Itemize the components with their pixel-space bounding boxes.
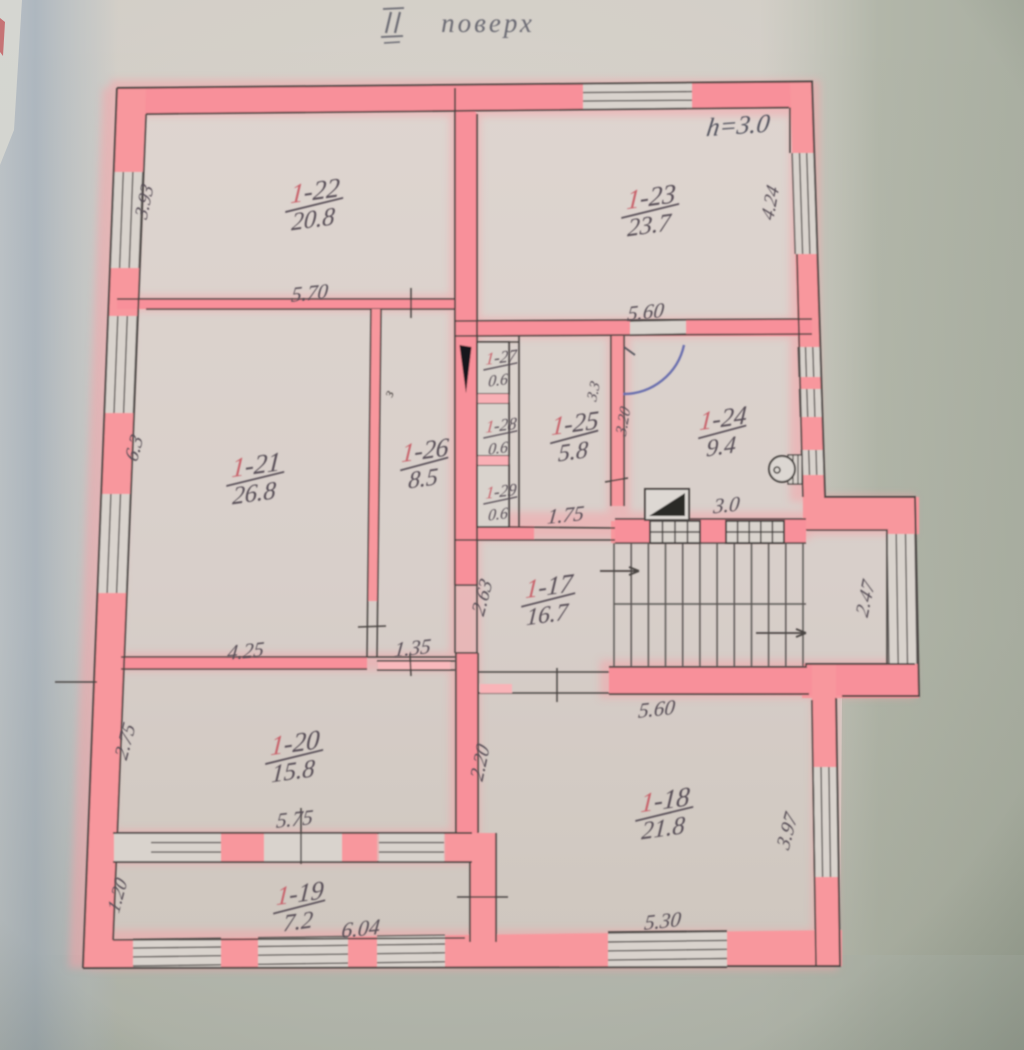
svg-text:5.75: 5.75: [275, 805, 314, 833]
svg-text:4.25: 4.25: [226, 637, 265, 665]
svg-text:7.2: 7.2: [282, 906, 314, 937]
svg-text:поверх: поверх: [441, 8, 535, 38]
svg-text:9.4: 9.4: [705, 431, 737, 462]
svg-text:1-28: 1-28: [485, 414, 518, 437]
svg-text:1.75: 1.75: [546, 501, 585, 529]
svg-text:5.70: 5.70: [290, 279, 329, 307]
svg-text:8.5: 8.5: [407, 463, 439, 494]
svg-text:0.6: 0.6: [487, 439, 508, 459]
svg-text:3.0: 3.0: [711, 491, 741, 518]
svg-text:6.04: 6.04: [340, 914, 381, 943]
svg-text:0.6: 0.6: [487, 505, 508, 525]
svg-text:h=3.0: h=3.0: [705, 109, 772, 142]
svg-text:5.30: 5.30: [643, 907, 682, 935]
svg-text:0.6: 0.6: [488, 371, 509, 391]
svg-text:5.60: 5.60: [637, 695, 676, 723]
svg-text:5.60: 5.60: [626, 298, 665, 326]
svg-text:5.8: 5.8: [557, 436, 589, 467]
svg-text:1.35: 1.35: [393, 634, 432, 662]
svg-text:1-29: 1-29: [485, 480, 518, 503]
